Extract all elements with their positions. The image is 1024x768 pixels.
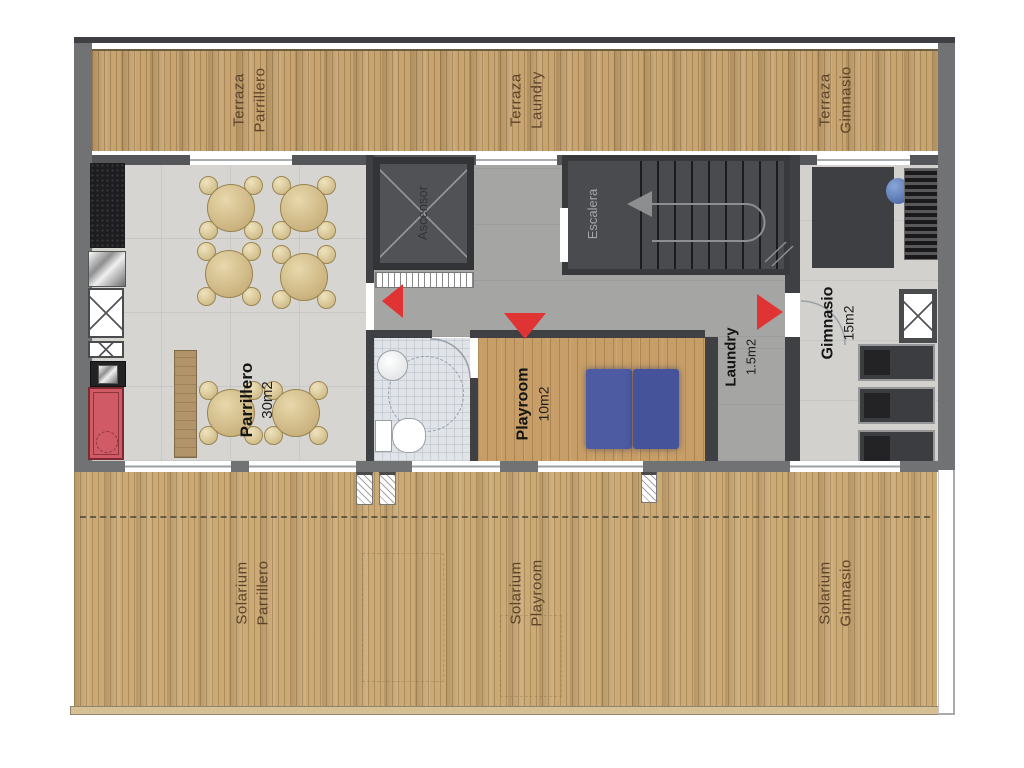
room-area: 10m2 — [535, 386, 553, 421]
label-escalera: Escalera — [585, 189, 601, 240]
play-mat — [586, 369, 632, 449]
east-wall — [938, 43, 955, 470]
toilet-bowl-icon — [392, 418, 426, 453]
facade-post — [500, 461, 538, 472]
table-icon — [280, 184, 328, 232]
deck-edge-strip — [70, 706, 942, 715]
room-name: Playroom — [513, 368, 533, 441]
label-line: Gimnasio — [837, 66, 856, 133]
column — [379, 472, 396, 505]
window — [817, 155, 910, 165]
label-terraza-laundry: Terraza Laundry — [507, 71, 547, 129]
duct-shaft — [899, 289, 937, 343]
dining-table-set — [273, 177, 335, 239]
table-icon — [205, 250, 253, 298]
room-name: Escalera — [585, 189, 601, 240]
wood-bar-bench — [174, 350, 197, 458]
label-solarium-parrillero: Solarium Parrillero — [233, 560, 273, 625]
room-name: Gimnasio — [818, 287, 838, 360]
laundry-west-wall — [705, 337, 718, 461]
lounger-outline — [362, 553, 444, 682]
kitchen-counter — [90, 163, 125, 248]
red-arrow-down — [504, 313, 546, 339]
play-mat — [633, 369, 679, 449]
grill-module — [88, 251, 126, 287]
gym-door-opening — [785, 293, 800, 337]
label-parrillero: Parrillero 30m2 — [236, 363, 278, 438]
sink-unit — [90, 361, 126, 387]
label-line: Terraza — [230, 73, 249, 127]
label-terraza-parrillero: Terraza Parrillero — [230, 67, 270, 132]
door-opening — [366, 283, 374, 330]
deck-joint-line — [80, 516, 930, 518]
facade-post — [643, 461, 790, 472]
red-arrow-right — [757, 294, 783, 330]
room-area: 1.5m2 — [743, 339, 759, 375]
dining-table-set — [200, 177, 262, 239]
label-playroom: Playroom 10m2 — [513, 368, 553, 441]
terrace-door — [476, 155, 557, 165]
room-name: Ascensor — [415, 186, 431, 240]
facade-post — [356, 461, 412, 472]
label-line: Solarium — [507, 561, 526, 624]
column — [356, 472, 373, 505]
facade-post — [231, 461, 249, 472]
red-arrow-left — [382, 284, 403, 318]
sink-basin-icon — [98, 365, 118, 384]
label-line: Terraza — [816, 73, 835, 127]
gym-machine — [858, 387, 935, 424]
label-laundry: Laundry 1.5m2 — [723, 327, 760, 386]
stair-door-opening — [560, 208, 568, 262]
table-icon — [272, 389, 320, 437]
room-area: 15m2 — [840, 305, 858, 340]
label-line: Parrillero — [254, 560, 273, 625]
side-planter-strip — [938, 470, 955, 715]
sink-icon — [377, 350, 408, 381]
label-line: Gimnasio — [837, 559, 856, 626]
room-name: Laundry — [723, 327, 742, 386]
room-area: 30m2 — [259, 381, 278, 419]
barbecue-grill — [88, 387, 124, 460]
gym-mat — [812, 167, 894, 268]
column — [641, 472, 657, 503]
dumbbell-rack — [904, 168, 938, 260]
facade-post — [74, 461, 125, 472]
label-line: Laundry — [528, 71, 547, 129]
table-icon — [280, 253, 328, 301]
table-icon — [207, 184, 255, 232]
label-line: Solarium — [816, 561, 835, 624]
room-name: Parrillero — [236, 363, 257, 438]
label-line: Playroom — [528, 559, 547, 626]
window — [190, 155, 292, 165]
toilet-tank-icon — [375, 420, 392, 452]
label-solarium-gimnasio: Solarium Gimnasio — [816, 559, 856, 626]
bath-east-wall — [470, 378, 478, 461]
dining-table-set — [198, 243, 260, 305]
label-solarium-playroom: Solarium Playroom — [507, 559, 547, 626]
label-ascensor: Ascensor — [415, 186, 431, 240]
facade-post — [900, 461, 938, 472]
gym-machine — [858, 344, 935, 381]
stair-treads — [640, 161, 784, 269]
dining-table-set — [273, 246, 335, 308]
label-terraza-gimnasio: Terraza Gimnasio — [816, 66, 856, 133]
label-gimnasio: Gimnasio 15m2 — [818, 287, 858, 360]
bath-north-wall — [374, 330, 432, 338]
label-line: Solarium — [233, 561, 252, 624]
shaft-x-icon — [88, 288, 124, 338]
lounger-outline — [500, 615, 562, 697]
floor-plan: Terraza Parrillero Terraza Laundry Terra… — [0, 0, 1024, 768]
small-hatch — [88, 341, 124, 358]
label-line: Parrillero — [251, 67, 270, 132]
north-parapet — [74, 37, 955, 43]
label-line: Terraza — [507, 73, 526, 127]
